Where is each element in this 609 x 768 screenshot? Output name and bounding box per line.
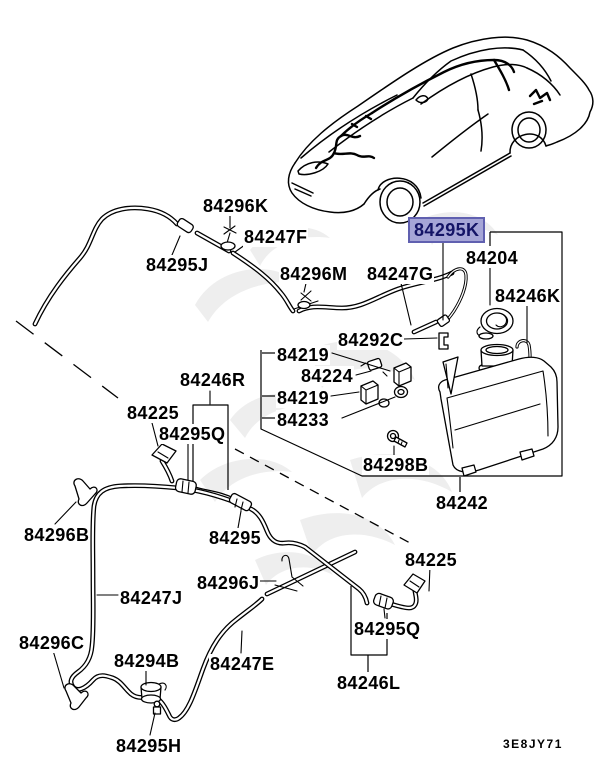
hose-joint-84295J	[176, 217, 194, 233]
car-illustration	[288, 37, 592, 223]
part-label-84219-b[interactable]: 84219	[276, 388, 330, 408]
part-label-84295Q-right[interactable]: 84295Q	[353, 619, 421, 639]
clip-84292C	[439, 333, 448, 349]
part-label-84246R[interactable]: 84246R	[179, 370, 246, 390]
part-label-84295Q-left[interactable]: 84295Q	[158, 424, 226, 444]
hose-clip-84296K	[221, 226, 236, 250]
part-label-84224[interactable]: 84224	[300, 366, 354, 386]
part-label-84247F[interactable]: 84247F	[243, 227, 308, 247]
fitting-84295H	[154, 701, 161, 714]
part-label-84296B[interactable]: 84296B	[23, 525, 90, 545]
valve-84295Q-right	[372, 592, 394, 610]
part-label-84296K[interactable]: 84296K	[202, 196, 269, 216]
part-label-84295K[interactable]: 84295K	[408, 217, 485, 243]
part-label-84295H[interactable]: 84295H	[115, 736, 182, 756]
parts-diagram-page: 84296K 84247F 84295J 84296M 84247G 84295…	[0, 0, 609, 768]
joint-84219-b	[361, 381, 378, 404]
part-label-84298B[interactable]: 84298B	[362, 455, 429, 475]
joint-84219-a	[394, 363, 411, 386]
part-label-84247G[interactable]: 84247G	[366, 264, 434, 284]
diagram-reference-code: 3E8JY71	[503, 737, 563, 751]
part-label-84233[interactable]: 84233	[276, 410, 330, 430]
washer-tank-84242	[439, 357, 558, 476]
valve-84295Q-left	[175, 478, 197, 495]
part-label-84292C[interactable]: 84292C	[337, 330, 404, 350]
grommet-84294B	[141, 683, 166, 704]
nozzle-84225-left	[152, 444, 176, 463]
part-label-84204[interactable]: 84204	[465, 248, 519, 268]
nozzle-84225-right	[404, 574, 425, 593]
joint-84295	[228, 493, 252, 512]
part-label-84242[interactable]: 84242	[435, 493, 489, 513]
part-label-84296J[interactable]: 84296J	[196, 573, 260, 593]
bolt-84298B	[388, 431, 408, 448]
part-label-84219-a[interactable]: 84219	[276, 345, 330, 365]
part-label-84296C[interactable]: 84296C	[18, 633, 85, 653]
washer-pump-84204	[477, 309, 513, 340]
part-label-84295[interactable]: 84295	[208, 528, 262, 548]
part-label-84294B[interactable]: 84294B	[113, 651, 180, 671]
part-label-84225-left[interactable]: 84225	[126, 403, 180, 423]
part-label-84246K[interactable]: 84246K	[494, 286, 561, 306]
part-label-84295J[interactable]: 84295J	[145, 255, 209, 275]
part-label-84296M[interactable]: 84296M	[279, 264, 348, 284]
part-label-84247E[interactable]: 84247E	[209, 654, 275, 674]
part-label-84247J[interactable]: 84247J	[119, 588, 183, 608]
part-label-84246L[interactable]: 84246L	[336, 673, 401, 693]
part-label-84225-right[interactable]: 84225	[404, 550, 458, 570]
